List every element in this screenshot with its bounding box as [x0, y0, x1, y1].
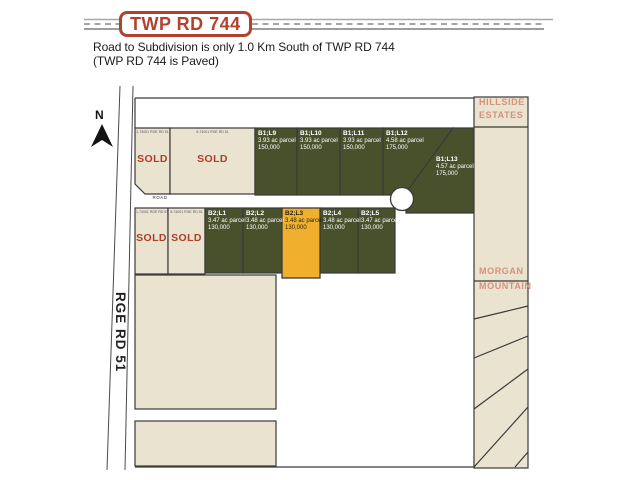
- rge-rd-51-east-edge: [125, 86, 133, 470]
- sold-stamp-row2-1: SOLD: [135, 232, 168, 244]
- lot-label-b2-l2: B2;L2 3.48 ac parcel 130,000: [246, 210, 284, 233]
- lot-id: B2;L2: [246, 210, 284, 218]
- lot-label-b1-l11: B1;L11 3.93 ac parcel 150,000: [343, 130, 381, 153]
- lot-size: 3.48 ac parcel: [285, 218, 323, 226]
- lot-size: 3.47 ac parcel: [361, 218, 399, 226]
- lot-price: 130,000: [208, 225, 246, 233]
- hillside-estates-label-line2: ESTATES: [479, 110, 523, 120]
- parcel-southwest-large: [135, 275, 276, 409]
- plat-map-canvas: [0, 0, 640, 480]
- lot-price: 150,000: [343, 145, 381, 153]
- lot-price: 150,000: [258, 145, 296, 153]
- lot-label-b1-l12: B1;L12 4.58 ac parcel 175,000: [386, 130, 424, 153]
- sold-stamp-row2-2: SOLD: [168, 232, 205, 244]
- lot-size: 3.93 ac parcel: [300, 138, 338, 146]
- lot-label-b2-l1: B2;L1 3.47 ac parcel 130,000: [208, 210, 246, 233]
- lot-label-b2-l5: B2;L5 3.47 ac parcel 130,000: [361, 210, 399, 233]
- lot-label-b1-l9: B1;L9 3.93 ac parcel 150,000: [258, 130, 296, 153]
- sold-address-row1-1: 2-74001 RGE RD 51: [135, 130, 170, 134]
- parcel-southwest-lower: [135, 421, 276, 466]
- lot-label-b1-l10: B1;L10 3.93 ac parcel 150,000: [300, 130, 338, 153]
- lot-price: 150,000: [300, 145, 338, 153]
- morgan-mountain-label-line2: MOUNTAIN: [479, 281, 532, 291]
- lot-id: B2;L4: [323, 210, 361, 218]
- sold-stamp-row1-1: SOLD: [135, 153, 170, 165]
- lot-label-b1-l13: B1;L13 4.57 ac parcel 175,000: [436, 156, 474, 179]
- lot-label-b2-l4: B2;L4 3.48 ac parcel 130,000: [323, 210, 361, 233]
- twp-rd-744-badge: TWP RD 744: [119, 11, 252, 37]
- lot-size: 4.57 ac parcel: [436, 164, 474, 172]
- lot-id: B1;L11: [343, 130, 381, 138]
- lot-size: 4.58 ac parcel: [386, 138, 424, 146]
- subdivision-plat-page: TWP RD 744 Road to Subdivision is only 1…: [0, 0, 640, 480]
- lot-id: B2;L1: [208, 210, 246, 218]
- subdivision-note-line2: (TWP RD 744 is Paved): [93, 54, 219, 68]
- lot-id: B1;L9: [258, 130, 296, 138]
- lot-price: 175,000: [386, 145, 424, 153]
- sold-address-row2-1: 1-74001 RGE RD 51: [136, 210, 168, 214]
- lot-price: 175,000: [436, 171, 474, 179]
- sold-address-row2-2: 5-74001 RGE RD 51: [168, 210, 205, 214]
- lot-price: 130,000: [361, 225, 399, 233]
- lot-size: 3.93 ac parcel: [343, 138, 381, 146]
- interior-road-label: ROAD: [145, 195, 175, 200]
- morgan-mountain-label-line1: MORGAN: [479, 266, 524, 276]
- lot-label-b2-l3: B2;L3 3.48 ac parcel 130,000: [285, 210, 323, 233]
- lot-size: 3.48 ac parcel: [323, 218, 361, 226]
- lot-price: 130,000: [246, 225, 284, 233]
- lot-id: B1;L12: [386, 130, 424, 138]
- rge-rd-51-label: RGE RD 51: [114, 292, 128, 372]
- lot-id: B2;L3: [285, 210, 323, 218]
- lot-size: 3.47 ac parcel: [208, 218, 246, 226]
- sold-stamp-row1-2: SOLD: [170, 153, 255, 165]
- lot-id: B2;L5: [361, 210, 399, 218]
- hillside-estates-label-line1: HILLSIDE: [479, 97, 525, 107]
- north-label: N: [95, 108, 104, 122]
- subdivision-note-line1: Road to Subdivision is only 1.0 Km South…: [93, 40, 395, 54]
- cul-de-sac-circle: [391, 188, 414, 211]
- lot-price: 130,000: [323, 225, 361, 233]
- lot-id: B1;L13: [436, 156, 474, 164]
- lot-id: B1;L10: [300, 130, 338, 138]
- sold-address-row1-2: 6-74001 RGE RD 51: [170, 130, 255, 134]
- north-arrow-icon: [91, 124, 113, 147]
- lot-size: 3.48 ac parcel: [246, 218, 284, 226]
- lot-price: 130,000: [285, 225, 323, 233]
- lot-size: 3.93 ac parcel: [258, 138, 296, 146]
